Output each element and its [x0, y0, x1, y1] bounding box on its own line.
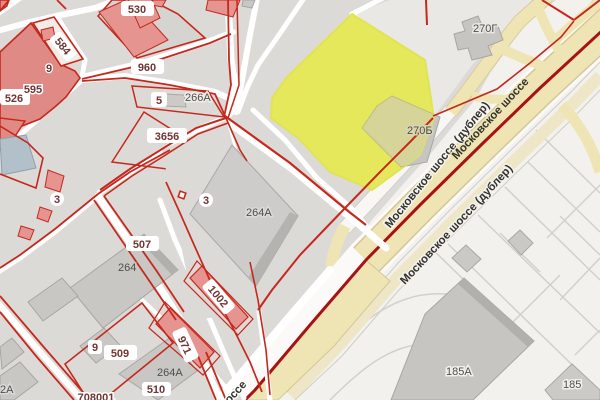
svg-text:264А: 264А — [157, 367, 183, 379]
svg-text:266А: 266А — [185, 92, 211, 104]
svg-text:2А: 2А — [0, 384, 14, 396]
svg-text:3656: 3656 — [155, 131, 179, 143]
svg-text:270Б: 270Б — [407, 125, 433, 137]
svg-text:3: 3 — [54, 194, 60, 206]
svg-text:526: 526 — [5, 93, 23, 105]
svg-text:510: 510 — [147, 384, 165, 396]
svg-text:509: 509 — [111, 348, 129, 360]
svg-text:530: 530 — [128, 4, 146, 16]
svg-text:9: 9 — [92, 342, 98, 354]
svg-text:264: 264 — [118, 262, 136, 274]
svg-text:960: 960 — [138, 62, 156, 74]
svg-text:595: 595 — [24, 84, 42, 96]
svg-text:270Г: 270Г — [473, 23, 497, 35]
svg-text:185: 185 — [563, 379, 581, 391]
svg-text:264А: 264А — [246, 207, 272, 219]
svg-text:185А: 185А — [446, 366, 472, 378]
svg-text:5: 5 — [156, 95, 162, 107]
svg-text:507: 507 — [133, 239, 151, 251]
svg-text:3: 3 — [203, 195, 209, 207]
svg-text:708001: 708001 — [78, 392, 115, 400]
svg-text:9: 9 — [46, 63, 52, 75]
